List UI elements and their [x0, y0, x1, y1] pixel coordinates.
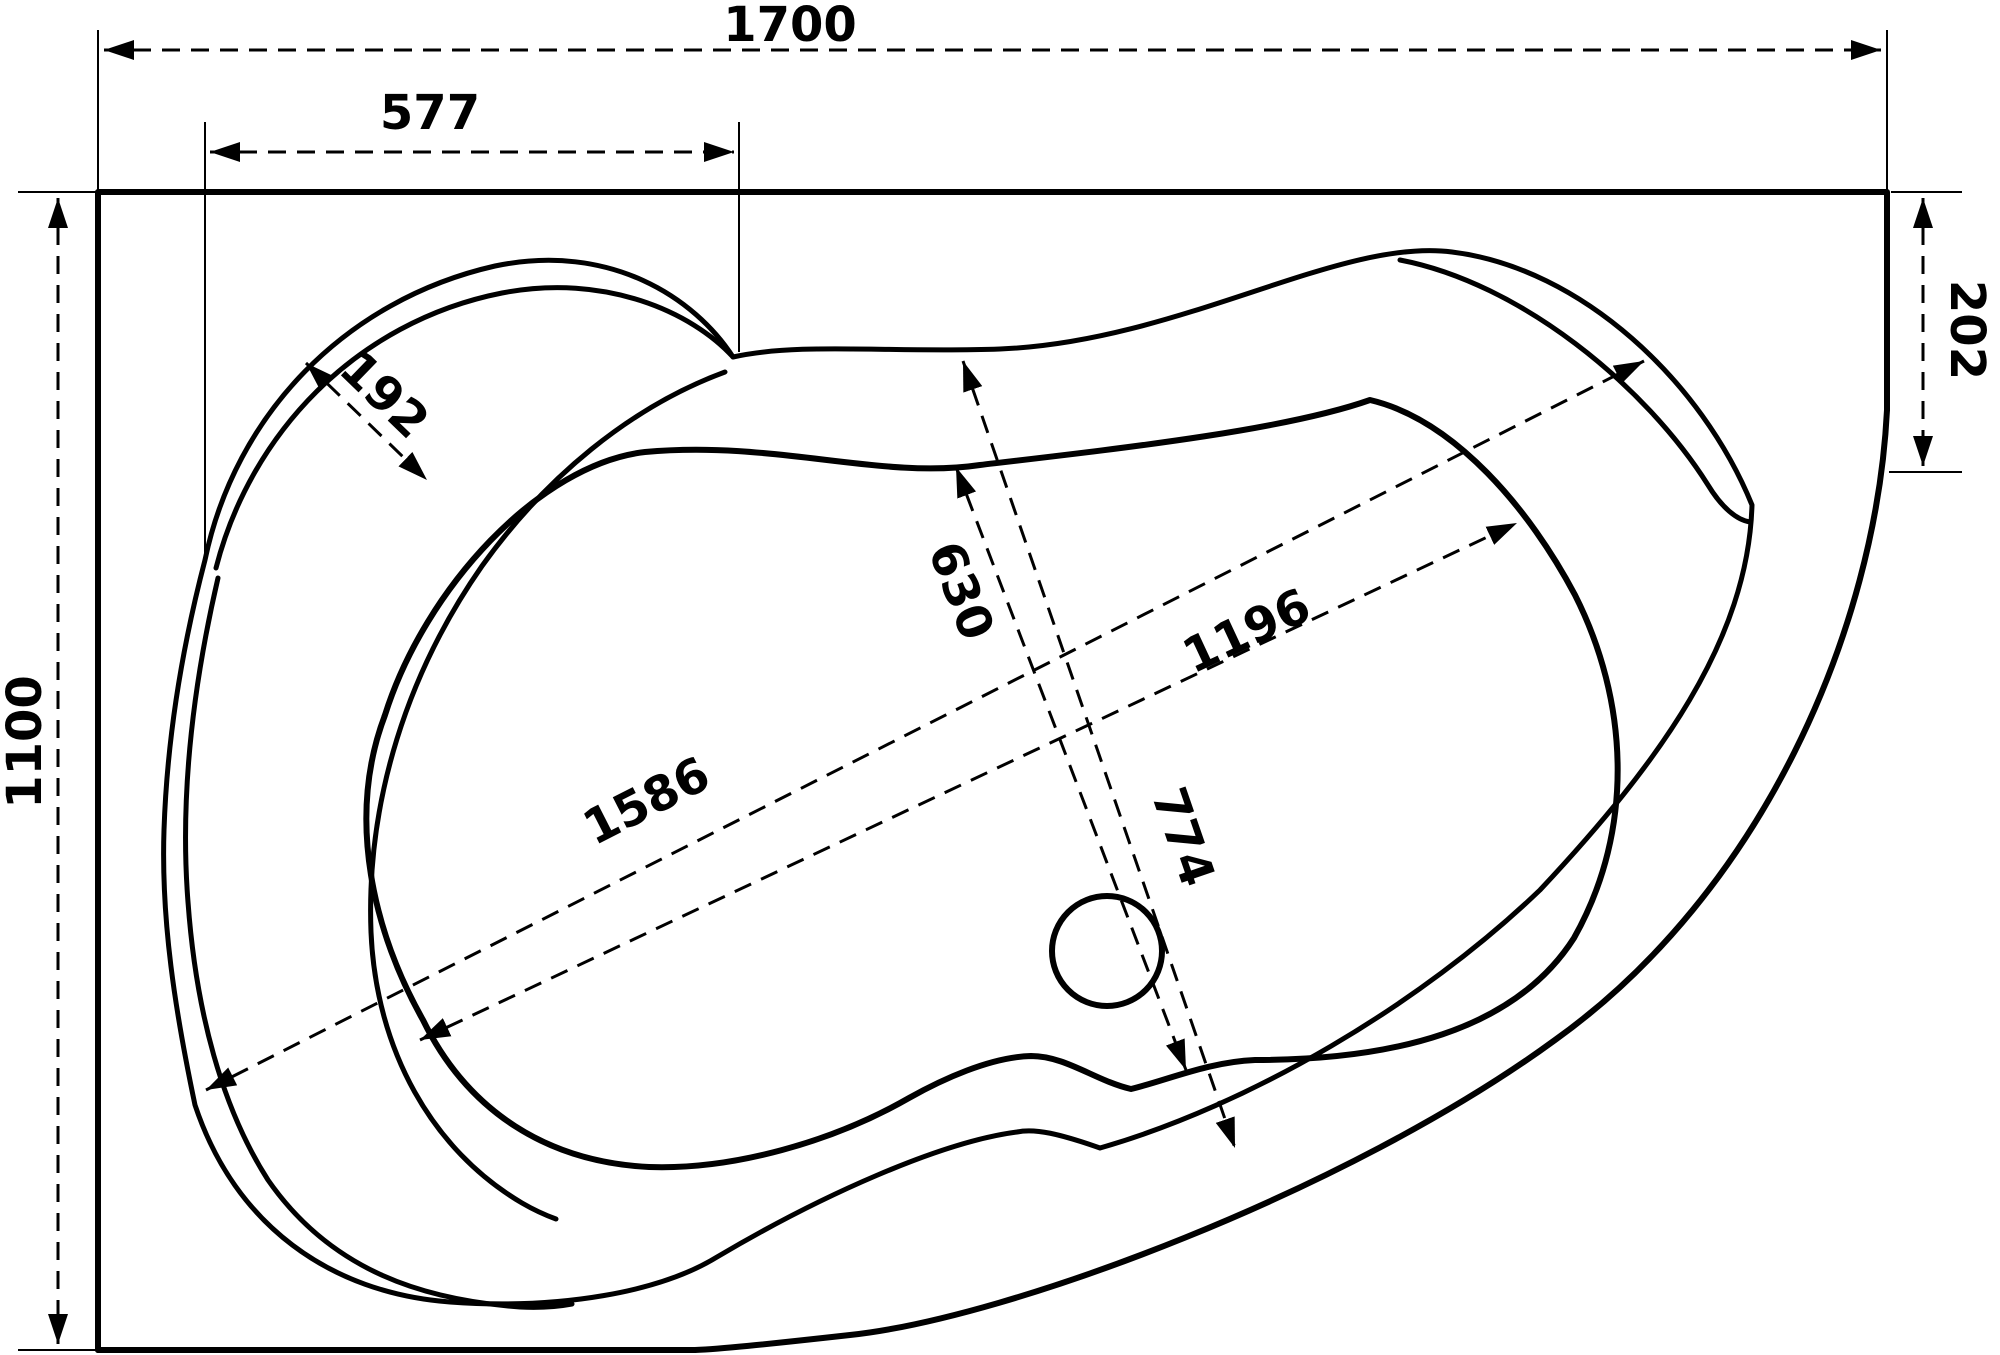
dim-corner-shelf-width: 577 [205, 85, 739, 556]
dim-rim-width-line [963, 361, 1235, 1148]
drain-circle [1052, 896, 1162, 1006]
dim-shelf-band-width-label: 192 [329, 340, 440, 450]
dim-shelf-band-width: 192 [306, 340, 440, 480]
dim-overall-width-label: 1700 [723, 0, 857, 53]
dim-right-side-depth-label: 202 [1939, 280, 1995, 380]
dim-overall-width: 1700 [98, 0, 1887, 190]
dim-overall-depth: 1100 [0, 192, 96, 1350]
dim-right-side-depth: 202 [1889, 192, 1995, 472]
dim-rim-width-label: 774 [1140, 781, 1226, 894]
drawing-canvas: 1700577110020219215861196630774 [0, 0, 2000, 1355]
dim-bowl-width: 630 [917, 467, 1186, 1070]
dim-bowl-length-label: 1196 [1174, 578, 1319, 685]
bathtub-dimension-drawing: 1700577110020219215861196630774 [0, 0, 2000, 1355]
dim-bowl-width-line [956, 467, 1186, 1070]
dim-corner-shelf-width-label: 577 [380, 85, 480, 141]
dim-overall-depth-label: 1100 [0, 675, 53, 809]
shelf-inner-arc [216, 288, 733, 568]
bowl-outline [366, 400, 1617, 1167]
dim-bowl-width-label: 630 [917, 534, 1005, 648]
dimension-layer: 1700577110020219215861196630774 [0, 0, 1995, 1350]
dim-rim-width: 774 [963, 361, 1235, 1148]
tub-apron-curve [695, 410, 1887, 1350]
